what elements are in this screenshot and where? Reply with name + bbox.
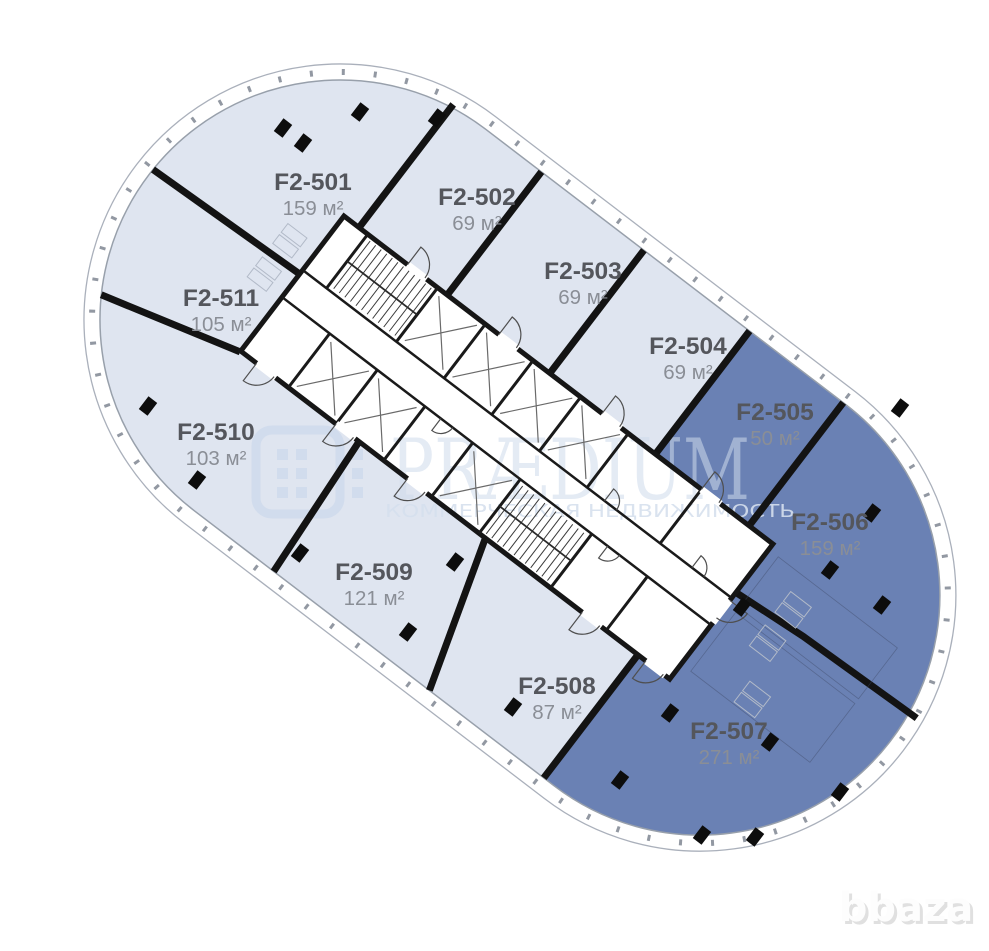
unit-area-label: 103 м² bbox=[186, 447, 247, 470]
bbaza-watermark: bbaza bbaza bbox=[839, 885, 977, 934]
unit-area-label: 69 м² bbox=[558, 286, 608, 309]
unit-name-label: F2-508 bbox=[518, 673, 596, 700]
unit-F2-511[interactable]: F2-511 105 м² bbox=[183, 285, 259, 336]
unit-name-label: F2-503 bbox=[544, 258, 622, 285]
unit-F2-501[interactable]: F2-501 159 м² bbox=[274, 169, 352, 220]
unit-F2-507[interactable]: F2-507 271 м² bbox=[690, 718, 768, 769]
unit-area-label: 69 м² bbox=[663, 361, 713, 384]
unit-name-label: F2-511 bbox=[183, 285, 259, 312]
unit-area-label: 105 м² bbox=[191, 313, 252, 336]
unit-F2-509[interactable]: F2-509 121 м² bbox=[335, 559, 413, 610]
unit-area-label: 159 м² bbox=[800, 537, 861, 560]
unit-name-label: F2-507 bbox=[690, 718, 768, 745]
unit-area-label: 159 м² bbox=[283, 197, 344, 220]
unit-F2-506[interactable]: F2-506 159 м² bbox=[791, 509, 869, 560]
unit-name-label: F2-509 bbox=[335, 559, 413, 586]
unit-name-label: F2-510 bbox=[177, 419, 255, 446]
unit-name-label: F2-502 bbox=[438, 184, 516, 211]
unit-area-label: 50 м² bbox=[750, 427, 800, 450]
floor-plan-canvas: PRÆDIUM КОММЕРЧЕСКАЯ НЕДВИЖИМОСТЬ bbox=[0, 0, 989, 951]
unit-name-label: F2-505 bbox=[736, 399, 814, 426]
unit-area-label: 271 м² bbox=[699, 746, 760, 769]
floor-plan-page: PRÆDIUM КОММЕРЧЕСКАЯ НЕДВИЖИМОСТЬ bbox=[0, 0, 989, 951]
unit-name-label: F2-501 bbox=[274, 169, 352, 196]
unit-area-label: 87 м² bbox=[532, 701, 582, 724]
unit-F2-510[interactable]: F2-510 103 м² bbox=[177, 419, 255, 470]
unit-name-label: F2-504 bbox=[649, 333, 727, 360]
unit-area-label: 121 м² bbox=[344, 587, 405, 610]
bbaza-text: bbaza bbox=[839, 885, 974, 931]
unit-name-label: F2-506 bbox=[791, 509, 869, 536]
unit-area-label: 69 м² bbox=[452, 212, 502, 235]
